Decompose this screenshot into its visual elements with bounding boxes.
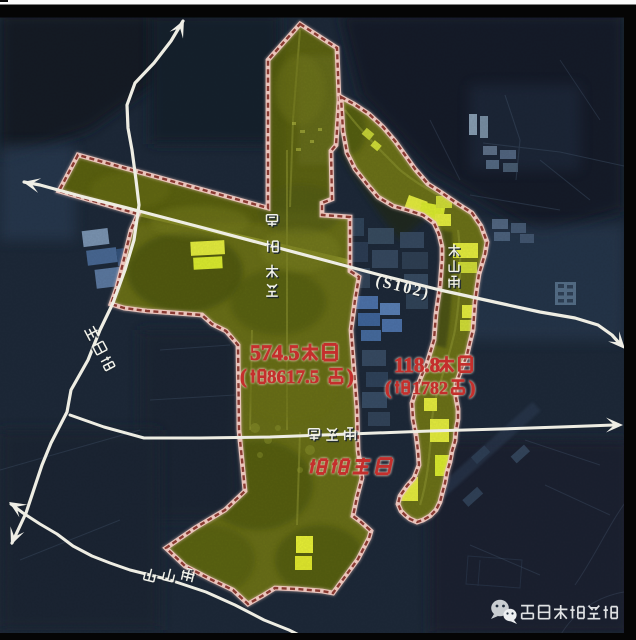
svg-text:(: ( (385, 378, 391, 399)
svg-text:574.5: 574.5 (250, 340, 300, 365)
svg-text:118.8: 118.8 (394, 353, 440, 377)
svg-text:): ) (469, 378, 475, 399)
svg-text:1782: 1782 (412, 378, 448, 398)
svg-text:(: ( (240, 366, 247, 388)
svg-text:8617.5: 8617.5 (267, 367, 319, 388)
svg-text:): ) (347, 366, 354, 388)
